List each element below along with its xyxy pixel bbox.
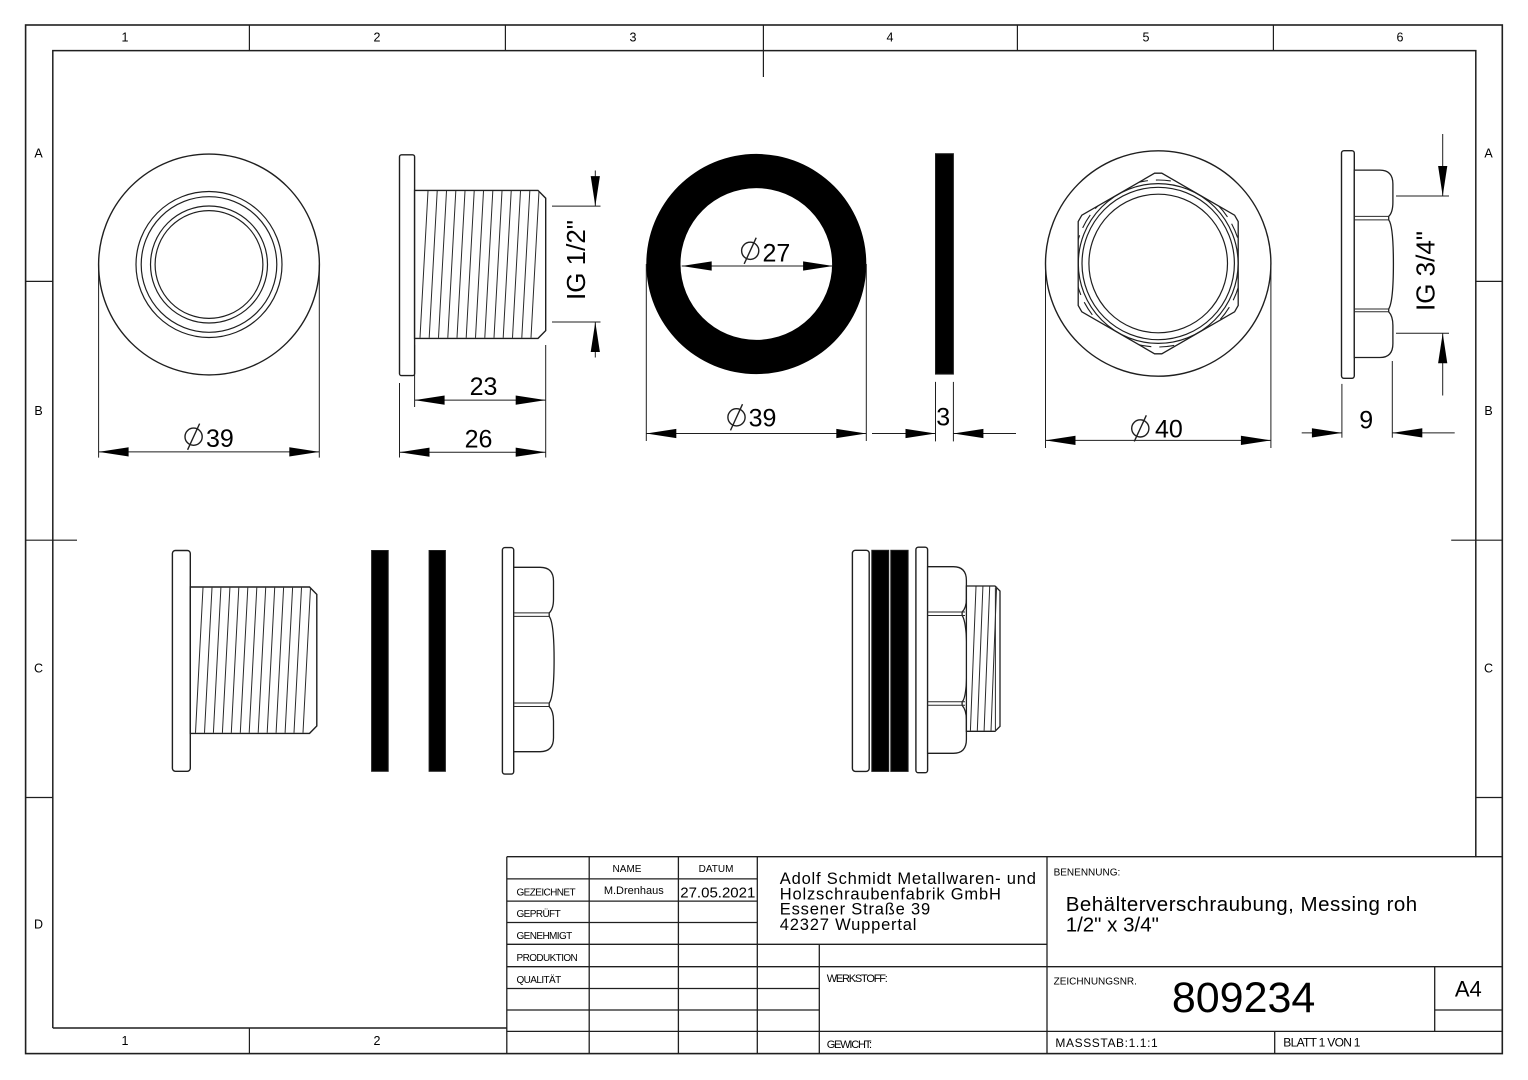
svg-text:QUALITÄT: QUALITÄT <box>517 974 562 986</box>
svg-text:GEWICHT:: GEWICHT: <box>827 1039 872 1051</box>
svg-text:26: 26 <box>465 425 493 453</box>
svg-text:NAME: NAME <box>613 864 642 875</box>
svg-text:1: 1 <box>122 31 129 45</box>
svg-text:ZEICHNUNGSNR.: ZEICHNUNGSNR. <box>1054 977 1137 988</box>
svg-text:4: 4 <box>887 31 894 45</box>
svg-text:809234: 809234 <box>1172 974 1316 1022</box>
svg-text:MASSSTAB:1.1:1: MASSSTAB:1.1:1 <box>1055 1036 1158 1050</box>
svg-text:27.05.2021: 27.05.2021 <box>680 884 755 901</box>
svg-text:C: C <box>34 662 43 676</box>
svg-text:2: 2 <box>374 31 381 45</box>
svg-text:42327 Wuppertal: 42327 Wuppertal <box>780 916 917 934</box>
svg-text:2: 2 <box>374 1034 381 1048</box>
svg-text:39: 39 <box>749 404 777 432</box>
svg-text:B: B <box>34 404 42 418</box>
svg-text:3: 3 <box>630 31 637 45</box>
svg-text:39: 39 <box>206 425 234 453</box>
svg-text:IG 1/2": IG 1/2" <box>561 220 591 300</box>
svg-text:1/2" x 3/4": 1/2" x 3/4" <box>1066 914 1159 937</box>
svg-text:BLATT 1 VON 1: BLATT 1 VON 1 <box>1283 1036 1361 1050</box>
svg-text:A4: A4 <box>1455 977 1482 1002</box>
svg-text:IG 3/4": IG 3/4" <box>1411 231 1441 311</box>
svg-text:A: A <box>1484 147 1493 161</box>
svg-text:27: 27 <box>763 240 791 268</box>
svg-text:3: 3 <box>936 404 950 432</box>
svg-text:GEZEICHNET: GEZEICHNET <box>517 887 576 898</box>
svg-text:GENEHMIGT: GENEHMIGT <box>517 931 573 942</box>
svg-text:BENENNUNG:: BENENNUNG: <box>1054 868 1121 879</box>
svg-text:PRODUKTION: PRODUKTION <box>517 953 578 964</box>
svg-text:GEPRÜFT: GEPRÜFT <box>517 908 561 920</box>
svg-text:23: 23 <box>470 373 498 401</box>
svg-text:40: 40 <box>1155 415 1183 443</box>
svg-text:DATUM: DATUM <box>699 864 734 875</box>
svg-text:9: 9 <box>1359 407 1373 435</box>
svg-text:M.Drenhaus: M.Drenhaus <box>604 885 664 897</box>
svg-text:6: 6 <box>1397 31 1404 45</box>
svg-text:B: B <box>1484 404 1492 418</box>
svg-text:D: D <box>34 918 43 932</box>
svg-text:WERKSTOFF:: WERKSTOFF: <box>827 973 888 985</box>
svg-text:1: 1 <box>122 1034 129 1048</box>
svg-text:A: A <box>34 147 43 161</box>
svg-text:5: 5 <box>1143 31 1150 45</box>
svg-text:C: C <box>1484 662 1493 676</box>
